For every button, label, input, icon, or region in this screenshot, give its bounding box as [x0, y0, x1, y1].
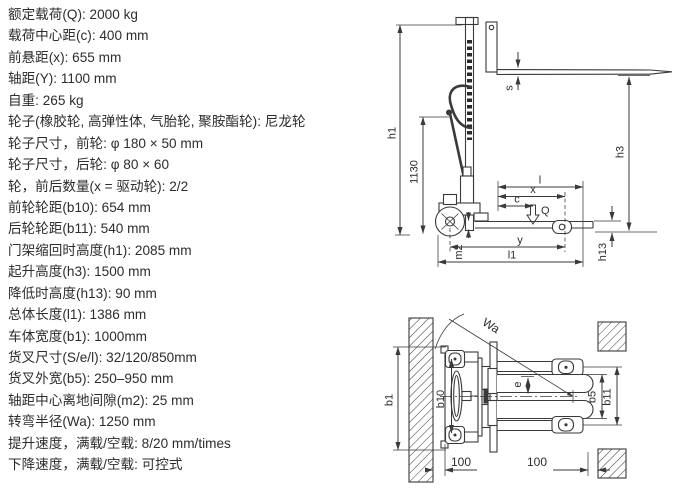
stacker-technical-drawing: h1 1130 s h3 l x c [0, 0, 685, 491]
dim-label-clearance-left: 100 [451, 455, 471, 469]
carriage-plate-plan [490, 342, 497, 452]
dim-label-1130: 1130 [409, 160, 421, 184]
dim-label-l1: l1 [508, 250, 517, 262]
fork-bottom-plan [497, 401, 593, 419]
dim-label-h3: h3 [615, 146, 627, 158]
steering-wheel-plan [451, 371, 462, 421]
dim-label-s: s [504, 85, 516, 91]
body-plan-group [441, 342, 497, 452]
dim-label-wa: Wa [480, 315, 503, 336]
side-view-diagram: h1 1130 s h3 l x c [387, 18, 673, 268]
spec-sheet-page: 额定载荷(Q): 2000 kg 载荷中心距(c): 400 mm 前悬距(x)… [0, 0, 685, 491]
dim-label-clearance-right: 100 [527, 455, 547, 469]
dim-label-b11: b11 [602, 388, 614, 406]
wall-hatch [409, 318, 433, 482]
wheel-bracket [444, 195, 457, 205]
corner-block-top [598, 322, 626, 351]
dim-label-l: l [539, 175, 541, 187]
dim-label-y: y [517, 235, 523, 247]
side-view-dimensions: h1 1130 s h3 l x c [387, 25, 658, 267]
load-roller [553, 221, 572, 234]
dim-label-h1: h1 [387, 127, 399, 139]
dim-label-e: e [512, 381, 524, 387]
mast-plan [478, 358, 482, 436]
dim-label-q: Q [541, 205, 550, 217]
lever-grip [446, 110, 452, 116]
dim-label-x: x [530, 184, 536, 196]
dim-label-b1: b1 [384, 394, 396, 406]
dim-label-b5: b5 [587, 391, 599, 403]
dim-label-h13: h13 [597, 243, 609, 261]
fork-raised [497, 70, 672, 75]
corner-block-bottom [598, 449, 626, 478]
dim-label-b10: b10 [435, 390, 447, 408]
dim-label-c: c [514, 194, 520, 206]
top-view-diagram: Wa b1 b10 e b5 b11 [384, 314, 627, 482]
